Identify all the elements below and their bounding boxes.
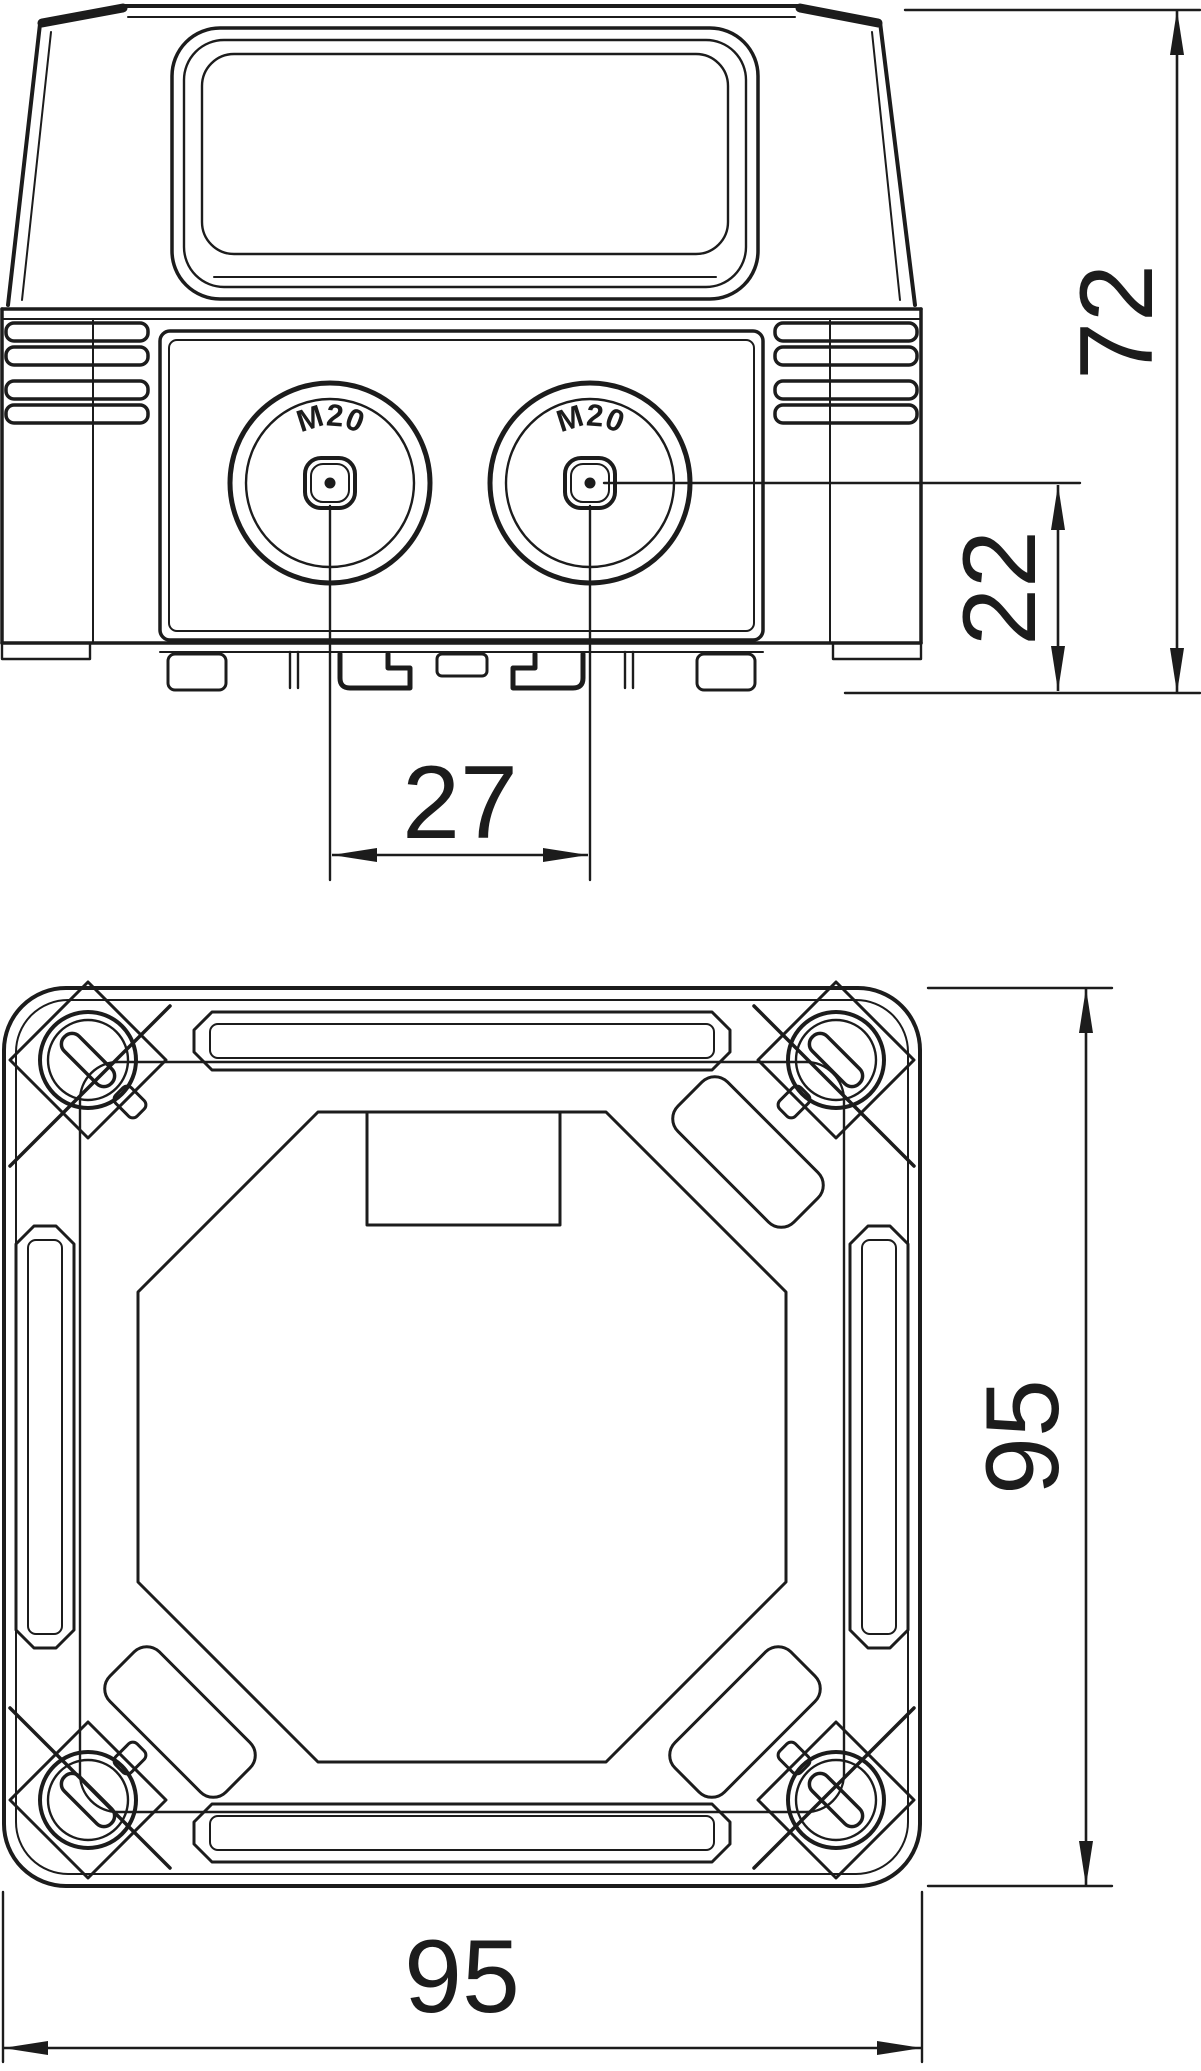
octagon-top-notch — [367, 1112, 560, 1225]
seal-strip-inner — [28, 1240, 62, 1634]
chamfer-bottom-right — [754, 1708, 914, 1868]
vent-slot — [6, 381, 148, 399]
seal-strip-inner — [210, 1816, 714, 1850]
junction-box-drawing: M20 M20 — [0, 0, 1201, 2071]
snap-clip-right — [513, 654, 583, 688]
dim-72-arrow-bottom — [1170, 648, 1184, 693]
box-bottom-feet — [2, 643, 921, 690]
dim-95h-arrow-top — [1079, 988, 1093, 1033]
dim-27-arrow-right — [543, 848, 588, 862]
dimension-27: 27 — [332, 745, 588, 862]
screw-slot — [57, 1769, 119, 1831]
screw-slot — [805, 1769, 867, 1831]
technical-drawing-page: M20 M20 — [0, 0, 1201, 2071]
screw-boss — [758, 1722, 914, 1878]
screw-bottom-left — [10, 1722, 166, 1878]
vent-slot — [775, 381, 917, 399]
vent-slots-left — [6, 323, 148, 423]
dim-22-label: 22 — [942, 530, 1058, 646]
dimension-95-height: 95 — [928, 988, 1112, 1886]
knockout-left-center-dot — [325, 478, 336, 489]
foot-left — [168, 654, 226, 690]
screw-top-left — [10, 982, 166, 1138]
dimension-72: 72 — [1059, 10, 1184, 693]
knockout-right-center-dot — [585, 478, 596, 489]
knockout-panel-inner — [169, 340, 754, 631]
dim-95w-label: 95 — [404, 1919, 520, 2035]
seal-strip-inner — [210, 1024, 714, 1058]
knockout-left-label: M20 — [292, 397, 369, 439]
bottom-view: 95 95 — [3, 982, 1112, 2062]
octagon-lid-outline — [138, 1112, 786, 1762]
vent-slot — [775, 347, 917, 365]
vent-slot — [775, 405, 917, 423]
lid-recess-mid — [184, 40, 746, 287]
screw-outer — [788, 1012, 884, 1108]
screw-slot — [57, 1029, 119, 1091]
center-tab — [437, 654, 487, 676]
screw-slot — [805, 1029, 867, 1091]
dim-27-label: 27 — [402, 745, 518, 861]
screw-inner — [48, 1760, 128, 1840]
dimension-95-width: 95 — [3, 1892, 922, 2062]
dim-72-label: 72 — [1059, 264, 1175, 380]
bottom-step-left — [2, 643, 90, 659]
screw-outer — [40, 1752, 136, 1848]
dim-95h-arrow-bottom — [1079, 1841, 1093, 1886]
dim-27-arrow-left — [332, 848, 377, 862]
dim-22-arrow-top — [1051, 485, 1065, 530]
knockout-right-label: M20 — [552, 397, 629, 439]
screw-inner — [796, 1760, 876, 1840]
dim-95w-arrow-right — [877, 2041, 922, 2055]
screw-bottom-right — [758, 1722, 914, 1878]
seal-strip-outer — [16, 1226, 74, 1648]
knockout-panel-outer — [160, 331, 763, 640]
dim-72-arrow-top — [1170, 10, 1184, 55]
vent-slot — [6, 347, 148, 365]
lid — [8, 6, 915, 305]
lid-recess-inner — [202, 54, 728, 254]
vent-slot — [775, 323, 917, 341]
dim-22-arrow-bottom — [1051, 646, 1065, 691]
lid-recess-outer — [172, 28, 758, 299]
dimension-22: 22 — [942, 485, 1065, 691]
inner-wall-outline — [80, 1062, 844, 1812]
foot-right — [697, 654, 755, 690]
screw-outer — [788, 1752, 884, 1848]
seal-strip-outer — [850, 1226, 908, 1648]
vent-slot — [6, 323, 148, 341]
bottom-step-right — [833, 643, 921, 659]
front-view: M20 M20 — [2, 6, 1200, 880]
vent-slot — [6, 405, 148, 423]
snap-clip-left — [340, 654, 410, 688]
lid-corner-chamfer-right — [800, 8, 878, 23]
vent-slots-right — [775, 323, 917, 423]
seal-strip-inner — [862, 1240, 896, 1634]
diagonal-knockout-bottom-right — [662, 1639, 827, 1804]
dim-95h-label: 95 — [965, 1379, 1081, 1495]
screw-boss — [758, 982, 914, 1138]
lid-outline — [8, 6, 915, 305]
lid-recess — [172, 28, 758, 299]
dim-95w-arrow-left — [3, 2041, 48, 2055]
screw-boss — [10, 982, 166, 1138]
box-outline — [4, 988, 920, 1886]
screw-boss — [10, 1722, 166, 1878]
seal-strip-left — [16, 1226, 74, 1648]
screw-outer — [40, 1012, 136, 1108]
screw-top-right — [758, 982, 914, 1138]
seal-strip-right — [850, 1226, 908, 1648]
lid-corner-chamfer-left — [42, 8, 123, 23]
